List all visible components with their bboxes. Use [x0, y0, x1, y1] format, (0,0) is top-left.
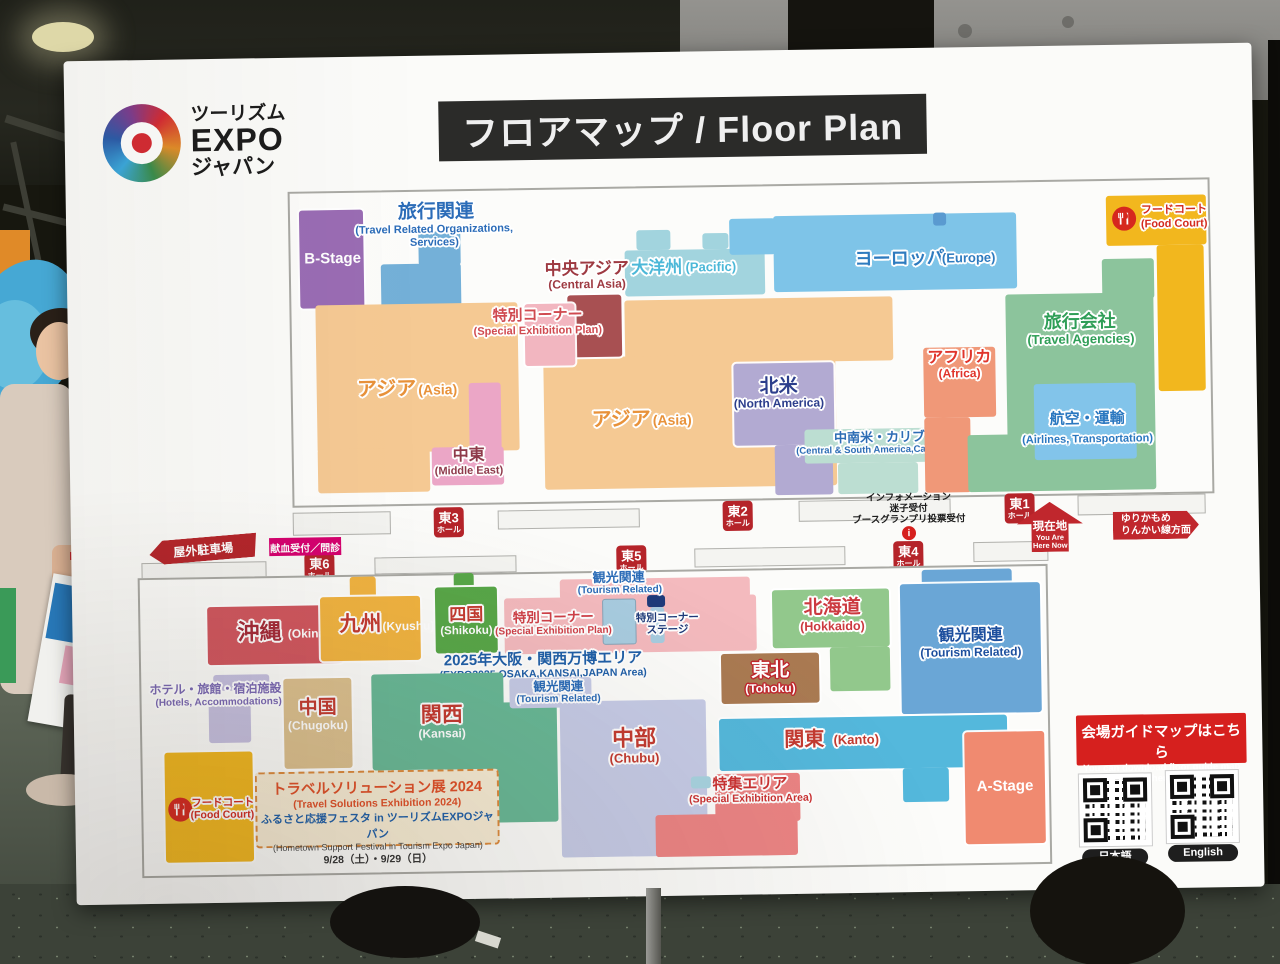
qr-code-english [1165, 769, 1240, 844]
chubu-label-en: (Chubu) [604, 751, 664, 766]
tourism-center-label-en: (Tourism Related) [509, 693, 609, 706]
food-court-lower-label-en: (Food Court) [189, 809, 255, 822]
europe-label-jp: ヨーロッパ [855, 248, 945, 270]
hokkaido-label-jp: 北海道 [792, 597, 872, 620]
info-icon-letter: i [908, 528, 911, 539]
hall-number: 東2 [727, 504, 747, 517]
photo-of-floor-plan-sign: ツーリズム EXPO ジャパン フロアマップ / Floor Plan B-St… [0, 0, 1280, 964]
asia-left-label-en: (Asia) [413, 382, 463, 398]
hokkaido-label-en: (Hokkaido) [792, 619, 872, 634]
region-food-court-upper [1157, 244, 1206, 391]
special-corner-lower-label-jp: 特別コーナー [498, 609, 608, 626]
corridor [498, 508, 640, 529]
guide-map-banner: 会場ガイドマップはこちら You can download floor guid… [1076, 713, 1247, 766]
qr-finder [1210, 774, 1234, 798]
kanto-label-en: (Kanto) [826, 732, 886, 747]
special-corner-lower-label-en: (Special Exhibition Plan) [488, 625, 618, 638]
hotels-label-en: (Hotels, Accommodations) [154, 696, 284, 709]
kyushu-label-en: (Kyushu) [380, 620, 436, 634]
asia-left-label-jp: アジア [357, 378, 417, 401]
logo-line2: EXPO [191, 123, 287, 157]
region-africa [924, 417, 971, 493]
north-america-label-jp: 北米 [749, 376, 809, 398]
qr-label-english: English [1168, 844, 1238, 862]
blood-donation-badge: 献血受付／問診 [269, 537, 341, 556]
logo-line3: ジャパン [191, 156, 286, 179]
travel-agencies-label-jp: 旅行会社 [1040, 311, 1120, 332]
region-special-area [655, 813, 798, 857]
chubu-label-jp: 中部 [604, 726, 664, 752]
asia-center-label-en: (Asia) [647, 412, 697, 428]
region-asia-left [318, 448, 431, 494]
special-corner-upper-label-jp: 特別コーナー [477, 307, 597, 326]
qr-finder [1083, 778, 1107, 802]
kansai-label-en: (Kansai) [412, 727, 472, 741]
region-hokkaido [830, 646, 891, 691]
central-asia-label-en: (Central Asia) [537, 277, 637, 292]
north-america-label-en: (North America) [729, 396, 829, 411]
tourism-right-label-en: (Tourism Related) [911, 645, 1031, 660]
hall-suffix: ホール [726, 519, 750, 527]
region-pacific [702, 233, 728, 249]
shikoku-label-jp: 四国 [440, 605, 492, 625]
chugoku-label-en: (Chugoku) [284, 719, 352, 734]
food-court-upper-label-en: (Food Court) [1136, 217, 1212, 231]
region-europe-dark-block [933, 212, 946, 225]
qr-finder [1170, 815, 1194, 839]
information-label-3: ブースグランプリ投票受付 [839, 514, 979, 527]
tourism-stage-label-en: (Tourism Related) [570, 584, 670, 597]
bystander-shoe [1030, 856, 1185, 964]
region-kanto [903, 768, 950, 803]
region-csa-caribbean [838, 462, 918, 494]
qr-finder [1170, 775, 1194, 799]
airlines-label-en: (Airlines, Transportation) [1017, 432, 1157, 447]
tohoku-label-en: (Tohoku) [740, 682, 800, 696]
airlines-label-jp: 航空・運輸 [1047, 411, 1127, 429]
qr-code-japanese [1078, 772, 1153, 847]
tohoku-label-jp: 東北 [740, 660, 800, 682]
hall-suffix: ホール [437, 526, 461, 534]
hotels-label-jp: ホテル・旅館・宿泊施設 [149, 682, 279, 697]
travel-solutions-box: トラベルソリューション展 2024 (Travel Solutions Exhi… [255, 769, 500, 849]
chugoku-label-jp: 中国 [288, 697, 348, 719]
special-corner-upper-label-en: (Special Exhibition Plan) [463, 324, 613, 339]
bystander-shoe [330, 886, 480, 958]
floor-plan-board: ツーリズム EXPO ジャパン フロアマップ / Floor Plan B-St… [0, 0, 1280, 964]
kansai-label-jp: 関西 [412, 703, 472, 727]
region-pacific [636, 230, 670, 251]
hall-badge-east2: 東2ホール [722, 501, 752, 531]
qr-finder [1084, 818, 1108, 842]
okinawa-label-jp: 沖縄 [224, 620, 294, 646]
middle-east-label-jp: 中東 [438, 447, 500, 466]
stage-flag [647, 595, 665, 607]
hall-number: 東6 [309, 557, 329, 570]
hall-number: 東5 [621, 549, 641, 562]
page-title: フロアマップ / Floor Plan [438, 94, 927, 162]
travel-agencies-label-en: (Travel Agencies) [1026, 332, 1136, 348]
corridor [694, 546, 845, 567]
food-court-upper-label-jp: フードコート [1138, 203, 1210, 216]
tourism-expo-logo-text: ツーリズム EXPO ジャパン [190, 104, 286, 179]
guide-map-banner-jp: 会場ガイドマップはこちら [1076, 719, 1247, 764]
stage-label-2: ステージ [632, 624, 702, 637]
pacific-label-en: (Pacific) [685, 260, 737, 275]
b-stage-label: B-Stage [302, 251, 364, 269]
yurikamome-arrow: ゆりかもめ りんかい線方面 [1113, 511, 1199, 540]
hall-number: 東1 [1009, 497, 1029, 510]
region-europe [729, 218, 776, 255]
outdoor-parking-label: 屋外駐車場 [173, 538, 234, 560]
region-hotels [209, 702, 252, 743]
hall-number: 東4 [898, 544, 918, 557]
tourism-center-label-jp: 観光関連 [523, 679, 593, 694]
travel-related-label-jp: 旅行関連 [376, 201, 496, 224]
furusato-festa-jp: ふるさと応援フェスタ in ツーリズムEXPOジャパン [257, 808, 497, 844]
train-line-2: りんかい線方面 [1121, 525, 1199, 538]
asia-center-label-jp: アジア [591, 408, 651, 431]
info-icon: i [902, 526, 916, 540]
corridor [293, 511, 391, 536]
hall-badge-east3: 東3ホール [434, 507, 464, 537]
middle-east-label-en: (Middle East) [428, 464, 510, 478]
africa-label-en: (Africa) [926, 367, 992, 381]
special-area-label-en: (Special Exhibition Area) [683, 793, 818, 807]
a-stage-label: A-Stage [967, 778, 1043, 796]
europe-label-en: (Europe) [939, 251, 999, 266]
hall-number: 東3 [438, 511, 458, 524]
qr-finder [1123, 777, 1147, 801]
tourism-right-label-jp: 観光関連 [931, 627, 1011, 646]
region-travel-agencies [967, 434, 1012, 492]
africa-label-jp: アフリカ [924, 349, 994, 368]
blood-donation-label: 献血受付／問診 [270, 539, 340, 555]
board-stand-pole [646, 888, 661, 964]
